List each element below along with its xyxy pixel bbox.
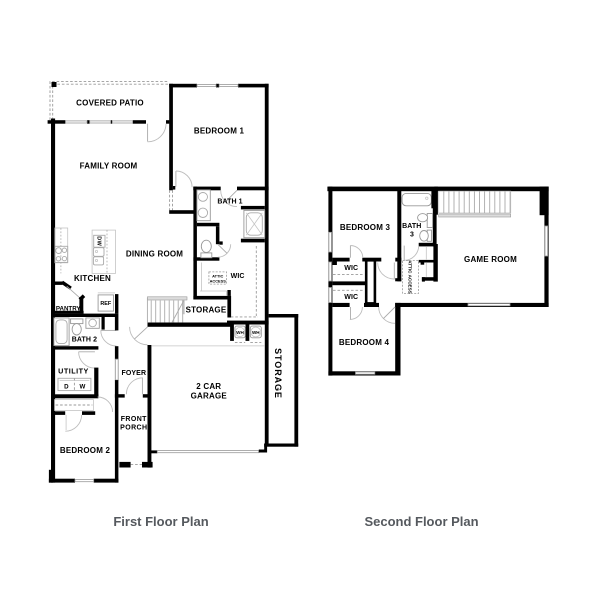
svg-text:ACCESS: ACCESS <box>210 278 227 283</box>
svg-text:BEDROOM 4: BEDROOM 4 <box>339 338 390 347</box>
svg-text:DINING ROOM: DINING ROOM <box>126 250 183 259</box>
svg-text:GAME ROOM: GAME ROOM <box>464 255 517 264</box>
svg-text:WIC: WIC <box>344 265 358 272</box>
svg-text:KITCHEN: KITCHEN <box>74 274 111 283</box>
svg-text:WIC: WIC <box>231 273 245 280</box>
svg-text:BEDROOM 3: BEDROOM 3 <box>340 223 391 232</box>
svg-text:W: W <box>79 383 85 390</box>
svg-text:FAMILY ROOM: FAMILY ROOM <box>80 162 138 171</box>
svg-text:FOYER: FOYER <box>121 370 146 377</box>
svg-text:DW: DW <box>95 236 101 246</box>
svg-text:FRONT: FRONT <box>121 416 147 423</box>
svg-text:PORCH: PORCH <box>120 424 147 431</box>
svg-text:PANTRY: PANTRY <box>56 305 82 312</box>
svg-text:First Floor Plan: First Floor Plan <box>113 514 208 529</box>
svg-text:WH: WH <box>236 330 244 335</box>
svg-text:3: 3 <box>410 232 414 239</box>
svg-text:BATH 1: BATH 1 <box>217 199 242 206</box>
svg-text:BEDROOM 2: BEDROOM 2 <box>60 446 111 455</box>
svg-text:WH: WH <box>252 330 260 335</box>
svg-text:STORAGE: STORAGE <box>273 348 283 399</box>
svg-text:REF: REF <box>100 301 111 307</box>
svg-text:COVERED PATIO: COVERED PATIO <box>76 99 144 108</box>
svg-text:D: D <box>64 383 69 390</box>
svg-text:Second Floor Plan: Second Floor Plan <box>364 514 478 529</box>
svg-text:2 CAR: 2 CAR <box>196 382 221 391</box>
svg-text:WIC: WIC <box>344 294 358 301</box>
svg-text:ATTIC ACCESS: ATTIC ACCESS <box>408 260 413 293</box>
svg-text:UTILITY: UTILITY <box>58 367 89 376</box>
svg-text:STORAGE: STORAGE <box>186 306 227 315</box>
svg-text:BATH 2: BATH 2 <box>72 337 97 344</box>
svg-text:GARAGE: GARAGE <box>191 392 228 401</box>
svg-text:BATH: BATH <box>402 223 421 230</box>
svg-text:BEDROOM 1: BEDROOM 1 <box>194 127 245 136</box>
